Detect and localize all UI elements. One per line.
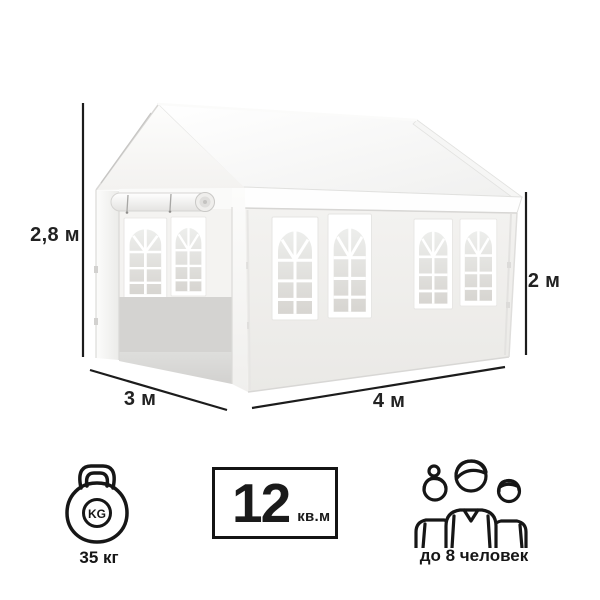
weight-label: 35 кг (47, 548, 151, 568)
arched-window (414, 219, 452, 309)
dimension-label-height: 2,8 м (13, 224, 97, 247)
dimension-label-width: 4 м (347, 390, 431, 413)
dimension-label-depth: 3 м (98, 388, 182, 411)
front-left-post (95, 190, 119, 360)
interior-window (124, 218, 167, 299)
area-value: 12 (232, 482, 289, 525)
interior-window (171, 217, 206, 296)
area-box: 12 кв.м (212, 467, 338, 539)
capacity-label: до 8 человек (392, 546, 556, 566)
product-dimension-diagram: 2,8 м 2 м 3 м 4 м KG 35 кг 12 кв.м (0, 0, 600, 600)
area-unit: кв.м (297, 508, 330, 525)
kettlebell-icon: KG (64, 462, 130, 548)
tent-side-wall (244, 208, 517, 392)
dimension-label-wall-height: 2 м (506, 270, 582, 293)
arched-window (460, 219, 497, 306)
people-icon (410, 458, 534, 548)
tent-interior (119, 207, 232, 384)
arched-window (272, 217, 318, 320)
interior-floor (119, 352, 232, 384)
kg-badge: KG (88, 507, 106, 521)
door-roll (111, 193, 215, 214)
arched-window (328, 214, 371, 318)
